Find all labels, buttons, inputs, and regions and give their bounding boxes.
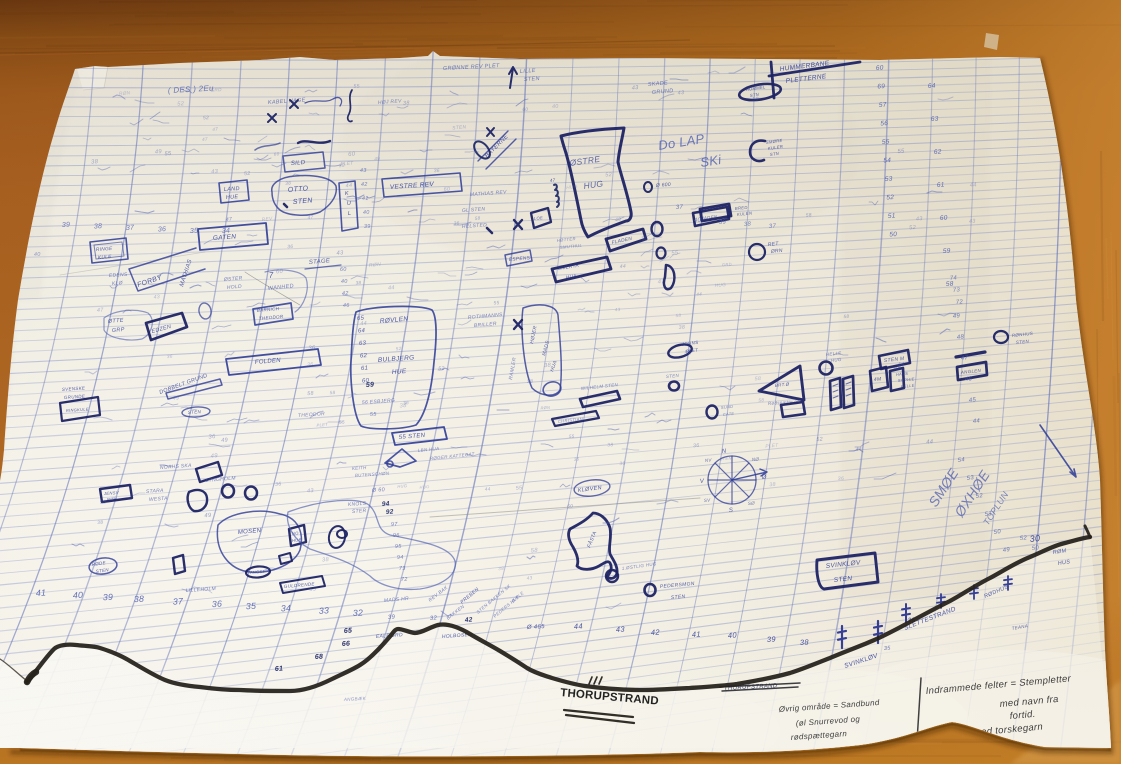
svg-text:GRP: GRP: [112, 327, 125, 334]
svg-text:50: 50: [889, 231, 897, 239]
svg-text:49: 49: [210, 453, 218, 460]
svg-text:38: 38: [678, 325, 685, 331]
svg-text:43: 43: [916, 216, 924, 223]
svg-text:55: 55: [897, 149, 905, 156]
svg-text:73: 73: [953, 287, 961, 294]
svg-text:52: 52: [396, 346, 402, 351]
svg-text:60: 60: [790, 66, 797, 72]
svg-text:32: 32: [353, 607, 364, 618]
svg-text:62: 62: [360, 353, 368, 359]
svg-text:33: 33: [319, 605, 330, 616]
svg-text:40: 40: [552, 104, 559, 110]
svg-text:41: 41: [36, 587, 47, 598]
svg-text:RET: RET: [768, 241, 780, 248]
svg-text:36: 36: [693, 443, 700, 449]
svg-text:40: 40: [363, 210, 371, 216]
svg-text:68: 68: [315, 653, 324, 661]
svg-text:44: 44: [574, 622, 583, 631]
svg-text:KLØ: KLØ: [112, 280, 124, 287]
svg-text:94: 94: [382, 500, 390, 508]
svg-text:40: 40: [73, 590, 84, 601]
svg-text:55: 55: [370, 412, 378, 418]
svg-text:38: 38: [91, 159, 99, 166]
svg-text:47: 47: [212, 127, 218, 132]
svg-text:RØN: RØN: [119, 90, 131, 97]
svg-text:HUG: HUG: [397, 483, 407, 489]
svg-text:49: 49: [155, 149, 163, 156]
svg-text:36: 36: [275, 481, 282, 487]
svg-text:HUG: HUG: [714, 282, 726, 289]
svg-text:43: 43: [615, 307, 621, 312]
svg-text:NØ: NØ: [752, 456, 760, 462]
svg-text:4M: 4M: [874, 376, 883, 383]
svg-text:LAND: LAND: [224, 186, 240, 193]
svg-text:30: 30: [1029, 533, 1041, 544]
svg-text:NV: NV: [705, 457, 713, 463]
svg-text:66: 66: [342, 640, 351, 648]
svg-text:55: 55: [353, 83, 360, 89]
svg-text:47: 47: [550, 178, 556, 183]
svg-text:35: 35: [884, 645, 892, 651]
svg-text:35: 35: [246, 601, 257, 612]
svg-text:57: 57: [879, 101, 887, 109]
svg-text:Ø: Ø: [761, 475, 768, 482]
svg-text:36: 36: [208, 434, 216, 441]
svg-text:38: 38: [285, 180, 291, 185]
svg-text:58: 58: [752, 96, 759, 102]
svg-text:58: 58: [100, 499, 108, 505]
svg-text:59: 59: [943, 247, 951, 255]
svg-text:59: 59: [366, 382, 375, 389]
svg-text:74: 74: [950, 275, 958, 282]
svg-text:56: 56: [880, 120, 888, 128]
svg-text:60: 60: [522, 107, 528, 112]
svg-text:43: 43: [526, 575, 532, 580]
svg-text:47: 47: [97, 307, 105, 313]
svg-text:52: 52: [177, 101, 185, 108]
svg-text:52: 52: [886, 194, 894, 202]
svg-text:47: 47: [658, 279, 666, 286]
svg-text:44: 44: [388, 285, 395, 291]
svg-text:38: 38: [769, 482, 776, 488]
svg-text:42: 42: [651, 628, 661, 637]
svg-text:36: 36: [434, 168, 440, 174]
svg-text:38: 38: [527, 379, 534, 385]
svg-text:36: 36: [287, 244, 293, 250]
svg-text:43: 43: [307, 488, 315, 495]
svg-text:38: 38: [399, 403, 407, 410]
svg-text:39: 39: [364, 224, 371, 230]
svg-text:60: 60: [567, 503, 573, 509]
svg-text:49: 49: [1002, 547, 1010, 554]
svg-text:63: 63: [359, 341, 367, 347]
svg-text:55: 55: [569, 434, 575, 439]
svg-text:39: 39: [719, 219, 727, 226]
svg-text:44: 44: [897, 362, 905, 369]
svg-text:STEN: STEN: [452, 124, 467, 131]
svg-text:97: 97: [391, 522, 399, 528]
svg-text:45: 45: [969, 397, 977, 404]
svg-text:43: 43: [677, 90, 684, 96]
svg-text:58: 58: [843, 314, 849, 319]
svg-text:37: 37: [676, 204, 684, 211]
svg-text:HUG: HUG: [566, 184, 578, 191]
svg-text:37: 37: [173, 596, 185, 607]
svg-text:fortid.: fortid.: [1009, 709, 1036, 722]
svg-text:54: 54: [957, 457, 965, 464]
svg-text:HUE: HUE: [420, 181, 432, 188]
svg-text:55: 55: [671, 250, 679, 257]
svg-text:38: 38: [97, 520, 103, 525]
svg-text:43: 43: [360, 168, 368, 174]
svg-text:60: 60: [940, 214, 948, 222]
svg-text:52: 52: [684, 350, 692, 357]
svg-text:44: 44: [360, 321, 367, 327]
svg-text:39: 39: [103, 592, 114, 603]
svg-text:REV: REV: [262, 216, 274, 223]
svg-text:60: 60: [876, 64, 884, 72]
svg-text:52: 52: [816, 436, 823, 442]
svg-text:63: 63: [931, 115, 939, 123]
svg-text:PLET: PLET: [316, 422, 328, 428]
svg-text:44: 44: [696, 291, 702, 296]
svg-text:36: 36: [574, 456, 580, 461]
svg-text:61: 61: [937, 181, 945, 189]
svg-text:44: 44: [926, 439, 933, 445]
svg-text:PLET: PLET: [765, 443, 779, 450]
svg-text:KEITH: KEITH: [352, 465, 368, 471]
svg-text:GRD: GRD: [722, 261, 732, 267]
svg-text:38: 38: [403, 100, 410, 106]
svg-text:44: 44: [970, 182, 977, 188]
svg-text:52: 52: [244, 171, 251, 177]
svg-text:94: 94: [397, 555, 404, 561]
svg-text:50: 50: [993, 529, 1001, 536]
svg-text:38: 38: [94, 223, 103, 230]
svg-text:38: 38: [355, 280, 361, 285]
svg-text:60: 60: [340, 267, 348, 273]
svg-text:RØN: RØN: [107, 496, 118, 502]
svg-text:62: 62: [934, 148, 942, 156]
svg-text:LOE: LOE: [534, 215, 544, 221]
svg-text:HUE: HUE: [392, 368, 407, 376]
svg-text:38: 38: [544, 363, 552, 370]
svg-text:38: 38: [322, 557, 330, 564]
svg-text:55: 55: [493, 300, 499, 306]
svg-text:55: 55: [882, 138, 890, 146]
svg-text:RØN: RØN: [540, 405, 550, 411]
svg-text:SV: SV: [704, 497, 712, 503]
svg-text:58: 58: [758, 397, 764, 402]
svg-text:38: 38: [498, 566, 504, 572]
svg-text:Ø 60: Ø 60: [371, 487, 386, 494]
svg-text:95: 95: [395, 544, 403, 550]
svg-text:49: 49: [615, 217, 622, 223]
svg-text:52: 52: [203, 115, 209, 121]
svg-text:49: 49: [221, 438, 229, 445]
svg-text:47: 47: [202, 137, 208, 143]
svg-text:36: 36: [453, 221, 460, 227]
svg-text:51: 51: [888, 212, 896, 220]
svg-text:55: 55: [309, 587, 317, 594]
svg-text:43: 43: [616, 625, 626, 634]
svg-text:44: 44: [620, 264, 627, 270]
svg-text:32: 32: [430, 615, 438, 622]
svg-text:43: 43: [969, 218, 977, 224]
svg-text:48: 48: [957, 334, 965, 341]
svg-text:43: 43: [153, 294, 160, 300]
svg-text:SILD: SILD: [291, 160, 306, 167]
svg-text:58: 58: [675, 313, 681, 318]
svg-text:49: 49: [953, 313, 961, 320]
svg-text:58: 58: [307, 391, 314, 397]
svg-text:STEN: STEN: [671, 594, 686, 601]
svg-text:60: 60: [443, 186, 450, 192]
svg-text:HUE: HUE: [226, 194, 239, 201]
svg-text:72: 72: [401, 577, 408, 583]
svg-text:37: 37: [769, 223, 777, 230]
svg-text:SØ: SØ: [748, 500, 756, 506]
svg-text:40: 40: [341, 279, 349, 285]
svg-text:43: 43: [632, 85, 640, 92]
svg-text:Ø 465: Ø 465: [526, 624, 545, 631]
svg-text:46: 46: [965, 376, 973, 383]
svg-text:52: 52: [1020, 535, 1028, 542]
svg-text:65: 65: [344, 627, 353, 635]
svg-text:41: 41: [692, 630, 701, 639]
svg-text:47: 47: [307, 215, 313, 221]
svg-text:36: 36: [838, 476, 845, 482]
svg-text:49: 49: [173, 395, 180, 401]
svg-text:36: 36: [212, 599, 223, 610]
svg-text:U: U: [347, 201, 352, 207]
svg-text:46: 46: [343, 303, 351, 309]
svg-text:44: 44: [346, 183, 353, 189]
svg-text:61: 61: [361, 366, 369, 372]
svg-text:7: 7: [269, 271, 275, 280]
svg-text:69: 69: [877, 83, 885, 91]
svg-text:39: 39: [767, 635, 777, 644]
svg-text:L: L: [348, 211, 352, 217]
svg-text:GRD: GRD: [210, 87, 222, 93]
svg-text:73: 73: [399, 566, 407, 572]
svg-text:STEN: STEN: [524, 76, 540, 83]
svg-text:K: K: [345, 191, 349, 197]
svg-text:HUG: HUG: [419, 484, 430, 490]
svg-text:STER: STER: [352, 508, 367, 515]
svg-text:58: 58: [475, 215, 481, 220]
svg-text:36: 36: [308, 345, 316, 352]
svg-text:72: 72: [956, 299, 964, 306]
svg-text:58: 58: [754, 376, 761, 382]
svg-text:52: 52: [909, 225, 917, 232]
svg-text:55: 55: [164, 151, 172, 158]
svg-text:64: 64: [928, 82, 936, 90]
svg-text:38: 38: [134, 594, 145, 605]
svg-text:STARA: STARA: [146, 488, 165, 495]
svg-text:47: 47: [961, 355, 969, 362]
svg-text:58: 58: [530, 548, 538, 555]
svg-text:60: 60: [348, 152, 356, 159]
svg-text:36: 36: [167, 354, 173, 359]
svg-text:52: 52: [605, 172, 613, 179]
svg-text:34: 34: [281, 603, 292, 614]
svg-text:61: 61: [275, 665, 284, 673]
svg-text:N: N: [722, 449, 728, 455]
svg-text:38: 38: [800, 638, 810, 647]
svg-text:54: 54: [883, 157, 891, 165]
svg-text:36: 36: [307, 362, 314, 368]
svg-text:KULE: KULE: [98, 254, 113, 261]
svg-text:60: 60: [276, 269, 284, 276]
svg-text:58: 58: [329, 390, 335, 395]
svg-text:43: 43: [336, 250, 344, 257]
svg-text:92: 92: [386, 508, 394, 516]
svg-text:42: 42: [361, 182, 368, 188]
svg-text:36: 36: [158, 226, 167, 233]
svg-text:RØN: RØN: [369, 262, 382, 269]
svg-text:40: 40: [728, 631, 738, 640]
svg-text:53: 53: [885, 175, 893, 183]
svg-text:S: S: [729, 508, 734, 514]
svg-text:RINGE: RINGE: [96, 246, 114, 253]
svg-text:40: 40: [34, 252, 42, 258]
svg-text:LILLE: LILLE: [520, 68, 536, 75]
svg-text:43: 43: [211, 169, 219, 176]
svg-text:49: 49: [374, 156, 380, 162]
svg-text:49: 49: [204, 513, 212, 520]
svg-text:STEN: STEN: [719, 455, 732, 461]
svg-text:38: 38: [744, 221, 752, 228]
svg-text:42: 42: [464, 616, 473, 624]
svg-text:44: 44: [973, 418, 981, 425]
svg-text:58: 58: [806, 212, 812, 218]
svg-text:40: 40: [694, 217, 702, 224]
svg-text:38: 38: [339, 163, 345, 169]
svg-text:38: 38: [607, 442, 614, 448]
svg-text:47: 47: [226, 217, 233, 223]
svg-text:64: 64: [358, 328, 366, 334]
svg-text:44: 44: [485, 486, 491, 491]
svg-text:37: 37: [126, 225, 136, 232]
svg-text:41: 41: [362, 196, 369, 202]
svg-text:36: 36: [619, 461, 625, 467]
svg-text:60: 60: [274, 151, 280, 156]
svg-text:39: 39: [62, 222, 71, 229]
svg-text:55: 55: [516, 485, 523, 491]
svg-text:39: 39: [388, 614, 396, 621]
